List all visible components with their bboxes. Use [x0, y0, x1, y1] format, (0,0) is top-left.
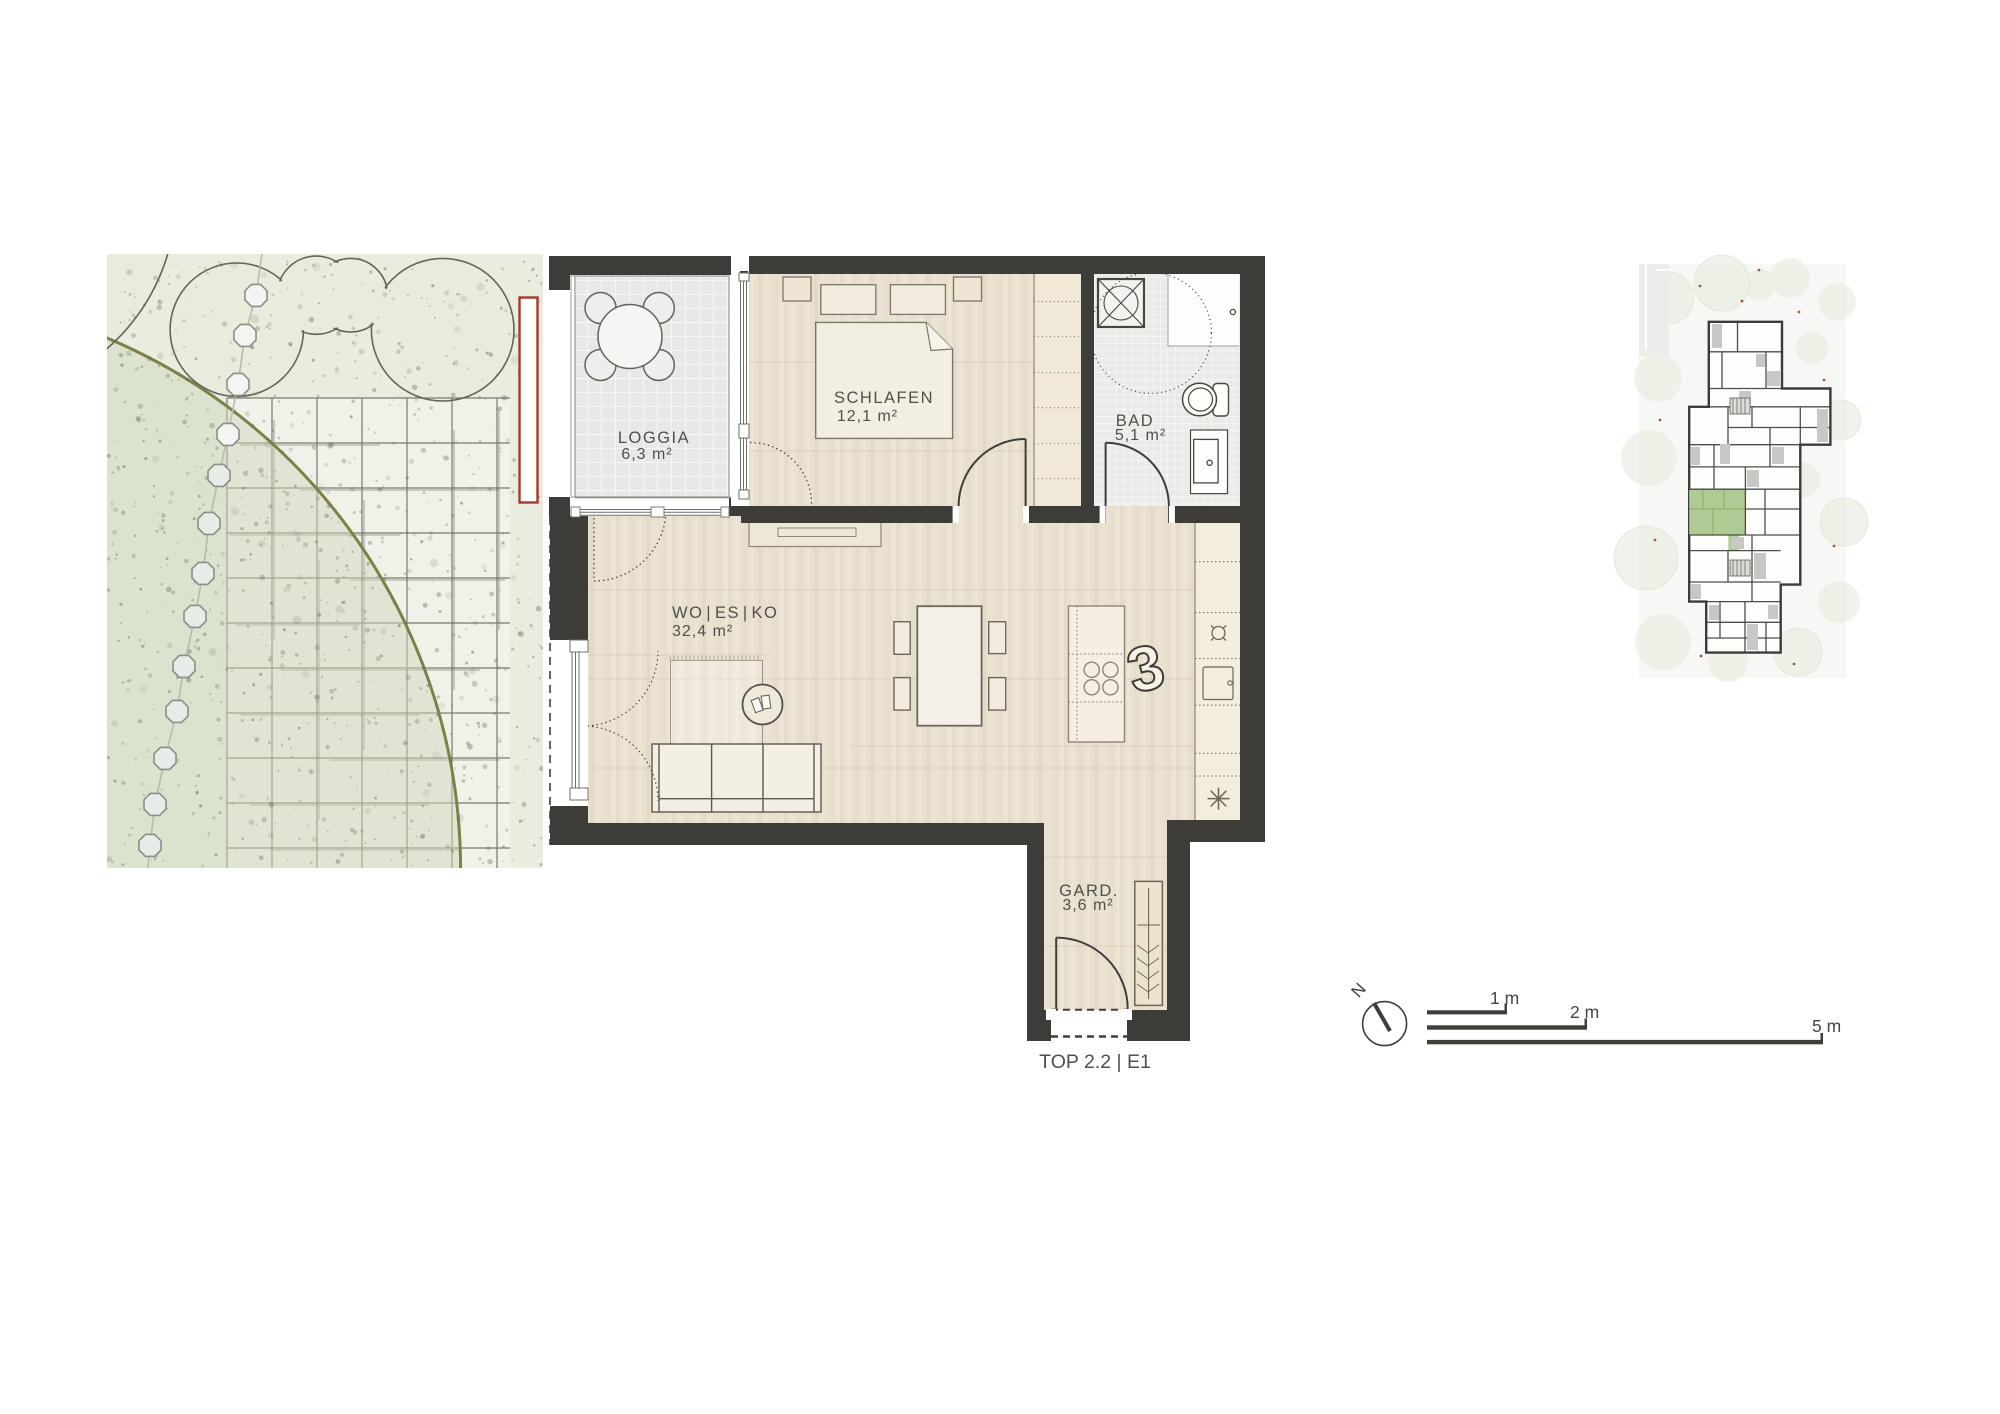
- svg-text:3,6 m²: 3,6 m²: [1062, 897, 1113, 914]
- svg-text:N: N: [1348, 979, 1370, 1001]
- svg-text:WO | ES | KO: WO | ES | KO: [672, 604, 778, 622]
- svg-text:32,4 m²: 32,4 m²: [672, 623, 733, 640]
- svg-text:5 m: 5 m: [1812, 1016, 1841, 1036]
- svg-text:SCHLAFEN: SCHLAFEN: [834, 389, 934, 407]
- svg-text:TOP 2.2 | E1: TOP 2.2 | E1: [1039, 1051, 1151, 1073]
- svg-text:LOGGIA: LOGGIA: [618, 429, 690, 447]
- svg-text:6,3 m²: 6,3 m²: [621, 446, 672, 463]
- svg-text:12,1 m²: 12,1 m²: [837, 408, 898, 425]
- svg-text:1 m: 1 m: [1490, 988, 1519, 1008]
- svg-text:2 m: 2 m: [1570, 1002, 1599, 1022]
- svg-text:5,1 m²: 5,1 m²: [1115, 427, 1166, 444]
